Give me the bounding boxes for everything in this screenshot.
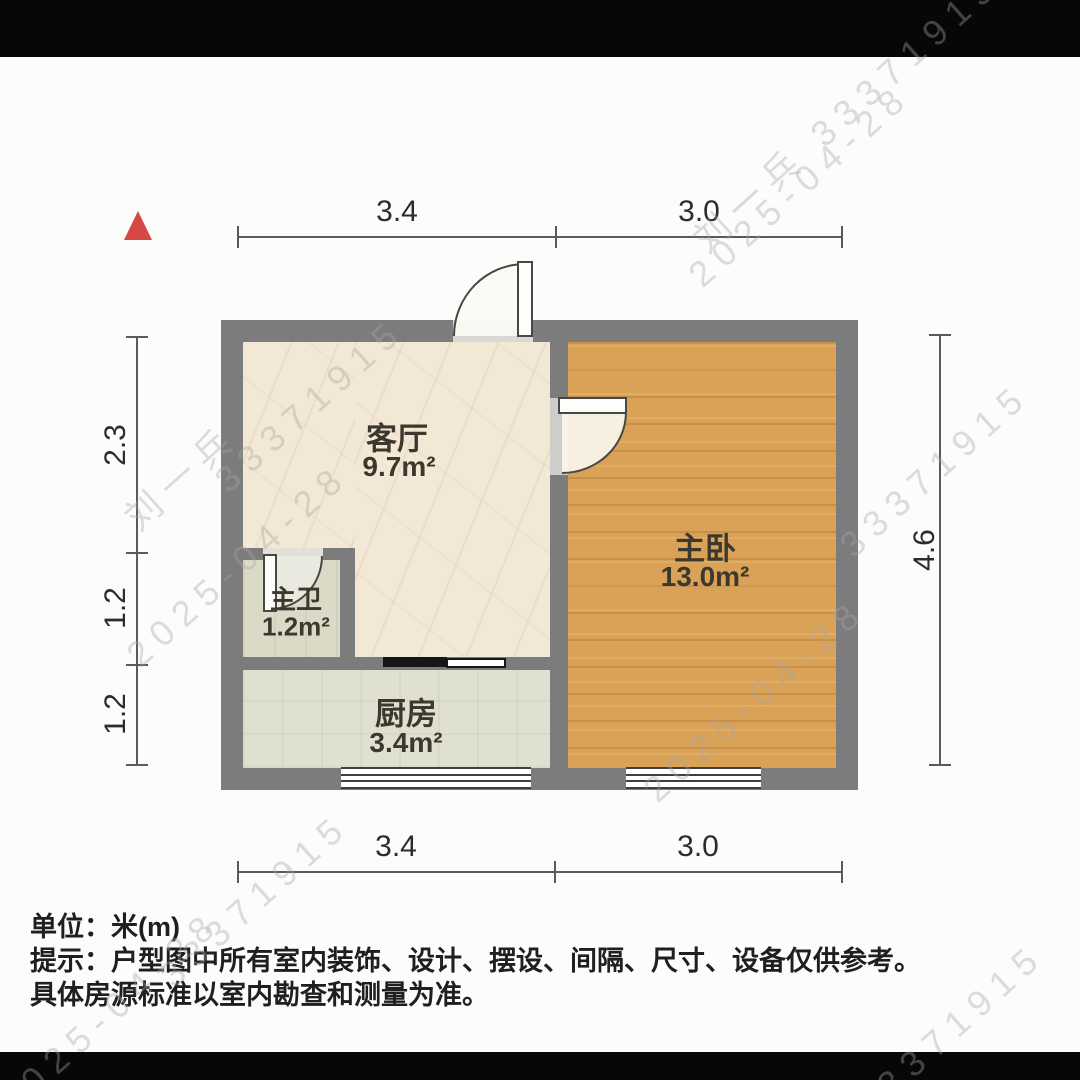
north-arrow-icon [124,211,152,240]
sliding-door-panel-dark [383,657,447,667]
bedroom-window [626,767,761,789]
top-black-bar [0,0,1080,57]
floor-plan-page: 3.4 3.0 3.4 3.0 2.3 1.2 1.2 4.6 客厅 9.7m²… [0,0,1080,1080]
dim-tick [126,664,148,666]
dim-left-3: 1.2 [99,693,133,735]
disclaimer-line-2: 具体房源标准以室内勘查和测量为准。 [30,973,489,1012]
dim-left-1: 2.3 [99,424,133,466]
dim-right-1: 4.6 [908,529,942,571]
dim-tick [126,336,148,338]
dim-tick [126,764,148,766]
watermark: 2025-04-28 [680,74,919,295]
bathroom-right-wall [340,548,355,657]
dim-line-bottom [238,871,842,873]
dim-left-2: 1.2 [99,587,133,629]
living-room-floor [355,342,550,658]
living-room-floor [243,342,355,548]
dim-tick [237,226,239,248]
dim-tick [126,552,148,554]
dim-tick [555,226,557,248]
dim-line-top [238,236,842,238]
bedroom-door-leaf [558,397,627,414]
bathroom-area: 1.2m² [262,612,330,643]
dim-tick [929,334,951,336]
dim-tick [841,861,843,883]
dim-tick [237,861,239,883]
dim-bottom-left: 3.4 [375,830,417,864]
bedroom-area: 13.0m² [661,561,750,593]
dim-tick [929,764,951,766]
entry-door-leaf [517,261,533,337]
dim-tick [554,861,556,883]
dim-top-right: 3.0 [678,195,720,229]
kitchen-window [341,767,531,789]
living-room-area: 9.7m² [362,451,435,483]
sliding-door-panel-light [446,658,506,668]
dim-tick [841,226,843,248]
kitchen-area: 3.4m² [369,727,442,759]
dim-bottom-right: 3.0 [677,830,719,864]
dim-line-left [136,337,138,765]
dim-top-left: 3.4 [376,195,418,229]
entry-door-swing-arc [453,263,525,336]
bottom-black-bar [0,1052,1080,1080]
